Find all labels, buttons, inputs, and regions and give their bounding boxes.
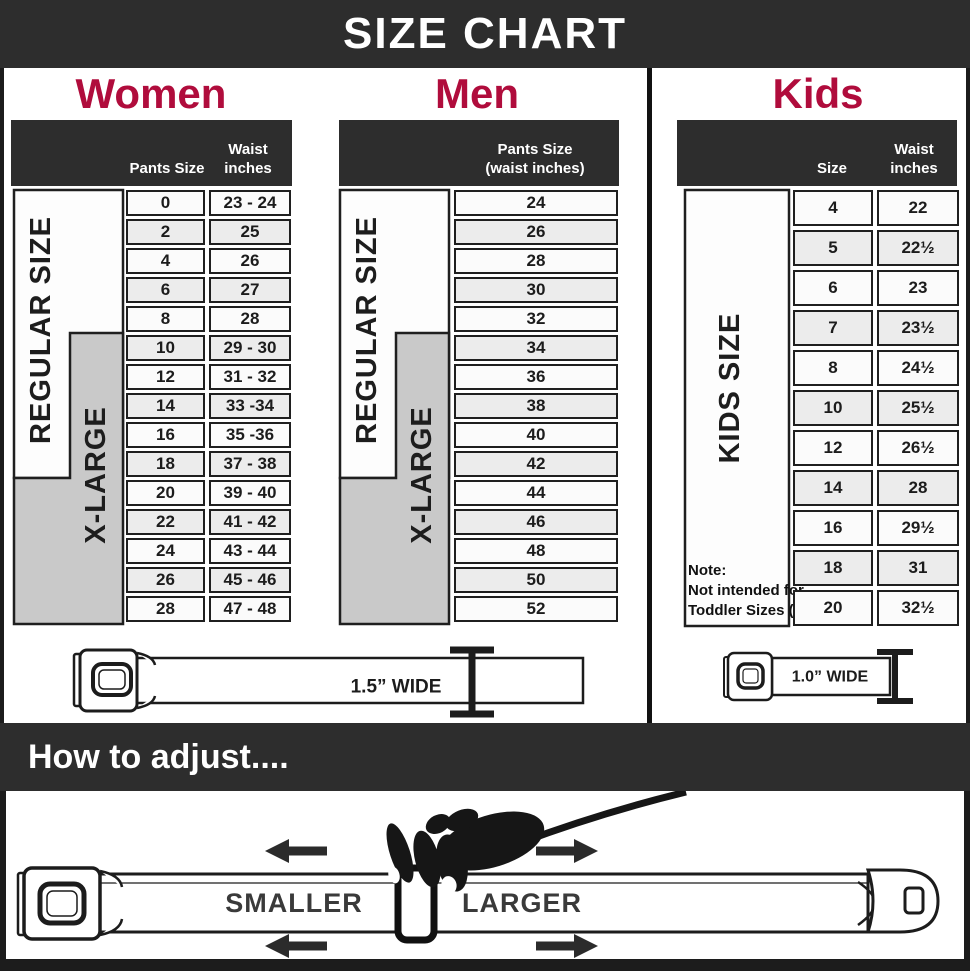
table-cell: 52 xyxy=(454,596,618,622)
table-cell: 8 xyxy=(126,306,205,332)
table-row: 824½ xyxy=(793,350,959,386)
table-cell: 31 - 32 xyxy=(209,364,291,390)
men-header-line1: Pants Size xyxy=(455,140,615,159)
kids-belt-graphic: 1.0” WIDE xyxy=(713,649,918,704)
table-cell: 27 xyxy=(209,277,291,303)
table-cell: 16 xyxy=(793,510,873,546)
table-row: 1433 -34 xyxy=(126,393,291,419)
table-cell: 18 xyxy=(793,550,873,586)
women-col2-header-line2: inches xyxy=(207,159,289,178)
kids-col1-header: Size xyxy=(792,159,872,178)
table-cell: 14 xyxy=(793,470,873,506)
women-xlarge-label: X-LARGE xyxy=(80,406,112,544)
table-cell: 12 xyxy=(793,430,873,466)
men-heading: Men xyxy=(387,70,567,118)
womens-mens-belt-graphic: 1.5” WIDE xyxy=(58,645,603,719)
adjust-illustration: SMALLER LARGER xyxy=(0,791,970,971)
table-row: 36 xyxy=(454,364,618,390)
table-row: 1231 - 32 xyxy=(126,364,291,390)
table-cell: 14 xyxy=(126,393,205,419)
men-size-groups: REGULAR SIZE X-LARGE xyxy=(338,188,451,628)
table-cell: 18 xyxy=(126,451,205,477)
smaller-label: SMALLER xyxy=(225,888,363,918)
table-cell: 24½ xyxy=(877,350,959,386)
kids-col2-header-line2: inches xyxy=(873,159,955,178)
table-row: 2645 - 46 xyxy=(126,567,291,593)
table-cell: 22 xyxy=(877,190,959,226)
table-row: 1837 - 38 xyxy=(126,451,291,477)
table-cell: 16 xyxy=(126,422,205,448)
table-cell: 47 - 48 xyxy=(209,596,291,622)
table-row: 30 xyxy=(454,277,618,303)
women-regular-label: REGULAR SIZE xyxy=(25,216,57,444)
adjust-heading: How to adjust.... xyxy=(28,738,289,777)
women-table: 023 - 242254266278281029 - 301231 - 3214… xyxy=(126,190,291,622)
table-row: 1831 xyxy=(793,550,959,586)
table-row: 1428 xyxy=(793,470,959,506)
table-cell: 43 - 44 xyxy=(209,538,291,564)
table-row: 2443 - 44 xyxy=(126,538,291,564)
table-row: 38 xyxy=(454,393,618,419)
table-cell: 38 xyxy=(454,393,618,419)
table-cell: 6 xyxy=(793,270,873,306)
table-row: 2847 - 48 xyxy=(126,596,291,622)
table-cell: 0 xyxy=(126,190,205,216)
table-row: 522½ xyxy=(793,230,959,266)
panel-left-border xyxy=(0,791,6,971)
table-row: 2039 - 40 xyxy=(126,480,291,506)
men-xlarge-label: X-LARGE xyxy=(406,406,438,544)
arrow-left-icon xyxy=(265,839,327,863)
table-cell: 37 - 38 xyxy=(209,451,291,477)
table-row: 42 xyxy=(454,451,618,477)
right-border xyxy=(966,68,970,723)
table-cell: 28 xyxy=(877,470,959,506)
table-row: 40 xyxy=(454,422,618,448)
table-cell: 2 xyxy=(126,219,205,245)
table-row: 723½ xyxy=(793,310,959,346)
arrow-right-icon xyxy=(536,934,598,958)
panel-right-border xyxy=(964,791,970,971)
arrow-right-icon xyxy=(536,839,598,863)
table-cell: 20 xyxy=(793,590,873,626)
table-cell: 25 xyxy=(209,219,291,245)
table-cell: 29½ xyxy=(877,510,959,546)
women-col2-header-line1: Waist xyxy=(207,140,289,159)
women-heading: Women xyxy=(61,70,241,118)
title-bar: SIZE CHART xyxy=(0,0,970,68)
table-cell: 24 xyxy=(126,538,205,564)
table-row: 1226½ xyxy=(793,430,959,466)
table-row: 50 xyxy=(454,567,618,593)
table-cell: 4 xyxy=(793,190,873,226)
left-border xyxy=(0,68,4,723)
table-row: 32 xyxy=(454,306,618,332)
kids-col2-header-line1: Waist xyxy=(873,140,955,159)
vertical-divider xyxy=(647,68,652,723)
kids-note-line2: Not intended for xyxy=(688,581,808,601)
larger-label: LARGER xyxy=(462,888,582,918)
kids-heading: Kids xyxy=(728,70,908,118)
table-cell: 10 xyxy=(793,390,873,426)
table-cell: 6 xyxy=(126,277,205,303)
table-cell: 42 xyxy=(454,451,618,477)
table-row: 48 xyxy=(454,538,618,564)
kids-table-header: Size Waist inches xyxy=(677,120,957,186)
table-cell: 23 xyxy=(877,270,959,306)
table-row: 1635 -36 xyxy=(126,422,291,448)
men-table-header: Pants Size (waist inches) xyxy=(339,120,619,186)
kids-size-label: KIDS SIZE xyxy=(714,313,746,464)
table-cell: 28 xyxy=(126,596,205,622)
table-row: 44 xyxy=(454,480,618,506)
table-cell: 36 xyxy=(454,364,618,390)
table-cell: 23½ xyxy=(877,310,959,346)
table-row: 627 xyxy=(126,277,291,303)
adjust-section-bar: How to adjust.... xyxy=(0,723,970,791)
table-row: 426 xyxy=(126,248,291,274)
table-row: 1629½ xyxy=(793,510,959,546)
table-cell: 33 -34 xyxy=(209,393,291,419)
table-row: 26 xyxy=(454,219,618,245)
table-cell: 35 -36 xyxy=(209,422,291,448)
women-col1-header: Pants Size xyxy=(127,159,207,178)
size-chart-page: SIZE CHART Women Men Kids Pants Size Wai… xyxy=(0,0,970,971)
men-table: 242628303234363840424446485052 xyxy=(454,190,618,622)
table-row: 1029 - 30 xyxy=(126,335,291,361)
table-cell: 25½ xyxy=(877,390,959,426)
table-cell: 26 xyxy=(126,567,205,593)
table-cell: 32 xyxy=(454,306,618,332)
kids-note: Note: Not intended for Toddler Sizes (T) xyxy=(688,561,808,621)
table-cell: 4 xyxy=(126,248,205,274)
table-cell: 24 xyxy=(454,190,618,216)
table-cell: 45 - 46 xyxy=(209,567,291,593)
table-row: 24 xyxy=(454,190,618,216)
table-cell: 22 xyxy=(126,509,205,535)
table-cell: 20 xyxy=(126,480,205,506)
buckle-ring xyxy=(738,664,763,688)
table-row: 422 xyxy=(793,190,959,226)
table-row: 34 xyxy=(454,335,618,361)
belt-width-label: 1.5” WIDE xyxy=(351,677,442,698)
table-cell: 7 xyxy=(793,310,873,346)
table-cell: 5 xyxy=(793,230,873,266)
table-row: 2032½ xyxy=(793,590,959,626)
table-row: 225 xyxy=(126,219,291,245)
table-cell: 10 xyxy=(126,335,205,361)
table-cell: 41 - 42 xyxy=(209,509,291,535)
table-cell: 8 xyxy=(793,350,873,386)
table-cell: 31 xyxy=(877,550,959,586)
adjust-illustration-svg: SMALLER LARGER xyxy=(0,791,970,971)
table-cell: 26 xyxy=(209,248,291,274)
belt-width-label: 1.0” WIDE xyxy=(792,669,869,686)
table-cell: 40 xyxy=(454,422,618,448)
kids-table: 422522½623723½824½1025½1226½14281629½183… xyxy=(793,190,959,626)
women-size-groups: REGULAR SIZE X-LARGE xyxy=(12,188,125,628)
belt-tip-hole xyxy=(905,888,923,913)
table-cell: 29 - 30 xyxy=(209,335,291,361)
table-cell: 26½ xyxy=(877,430,959,466)
table-cell: 22½ xyxy=(877,230,959,266)
table-cell: 46 xyxy=(454,509,618,535)
page-title: SIZE CHART xyxy=(343,9,627,59)
table-row: 2241 - 42 xyxy=(126,509,291,535)
kids-note-line1: Note: xyxy=(688,561,808,581)
table-cell: 23 - 24 xyxy=(209,190,291,216)
table-cell: 50 xyxy=(454,567,618,593)
table-cell: 32½ xyxy=(877,590,959,626)
table-row: 623 xyxy=(793,270,959,306)
table-row: 52 xyxy=(454,596,618,622)
table-row: 46 xyxy=(454,509,618,535)
table-row: 023 - 24 xyxy=(126,190,291,216)
kids-note-line3: Toddler Sizes (T) xyxy=(688,601,808,621)
table-row: 828 xyxy=(126,306,291,332)
table-cell: 39 - 40 xyxy=(209,480,291,506)
table-cell: 12 xyxy=(126,364,205,390)
table-cell: 44 xyxy=(454,480,618,506)
panel-bottom-border xyxy=(0,959,970,971)
table-cell: 48 xyxy=(454,538,618,564)
belt-tip xyxy=(868,870,938,932)
arrow-left-icon xyxy=(265,934,327,958)
men-header-line2: (waist inches) xyxy=(455,159,615,178)
table-row: 28 xyxy=(454,248,618,274)
table-cell: 30 xyxy=(454,277,618,303)
women-table-header: Pants Size Waist inches xyxy=(11,120,292,186)
table-cell: 28 xyxy=(454,248,618,274)
table-row: 1025½ xyxy=(793,390,959,426)
table-cell: 26 xyxy=(454,219,618,245)
men-regular-label: REGULAR SIZE xyxy=(351,216,383,444)
table-cell: 28 xyxy=(209,306,291,332)
table-cell: 34 xyxy=(454,335,618,361)
